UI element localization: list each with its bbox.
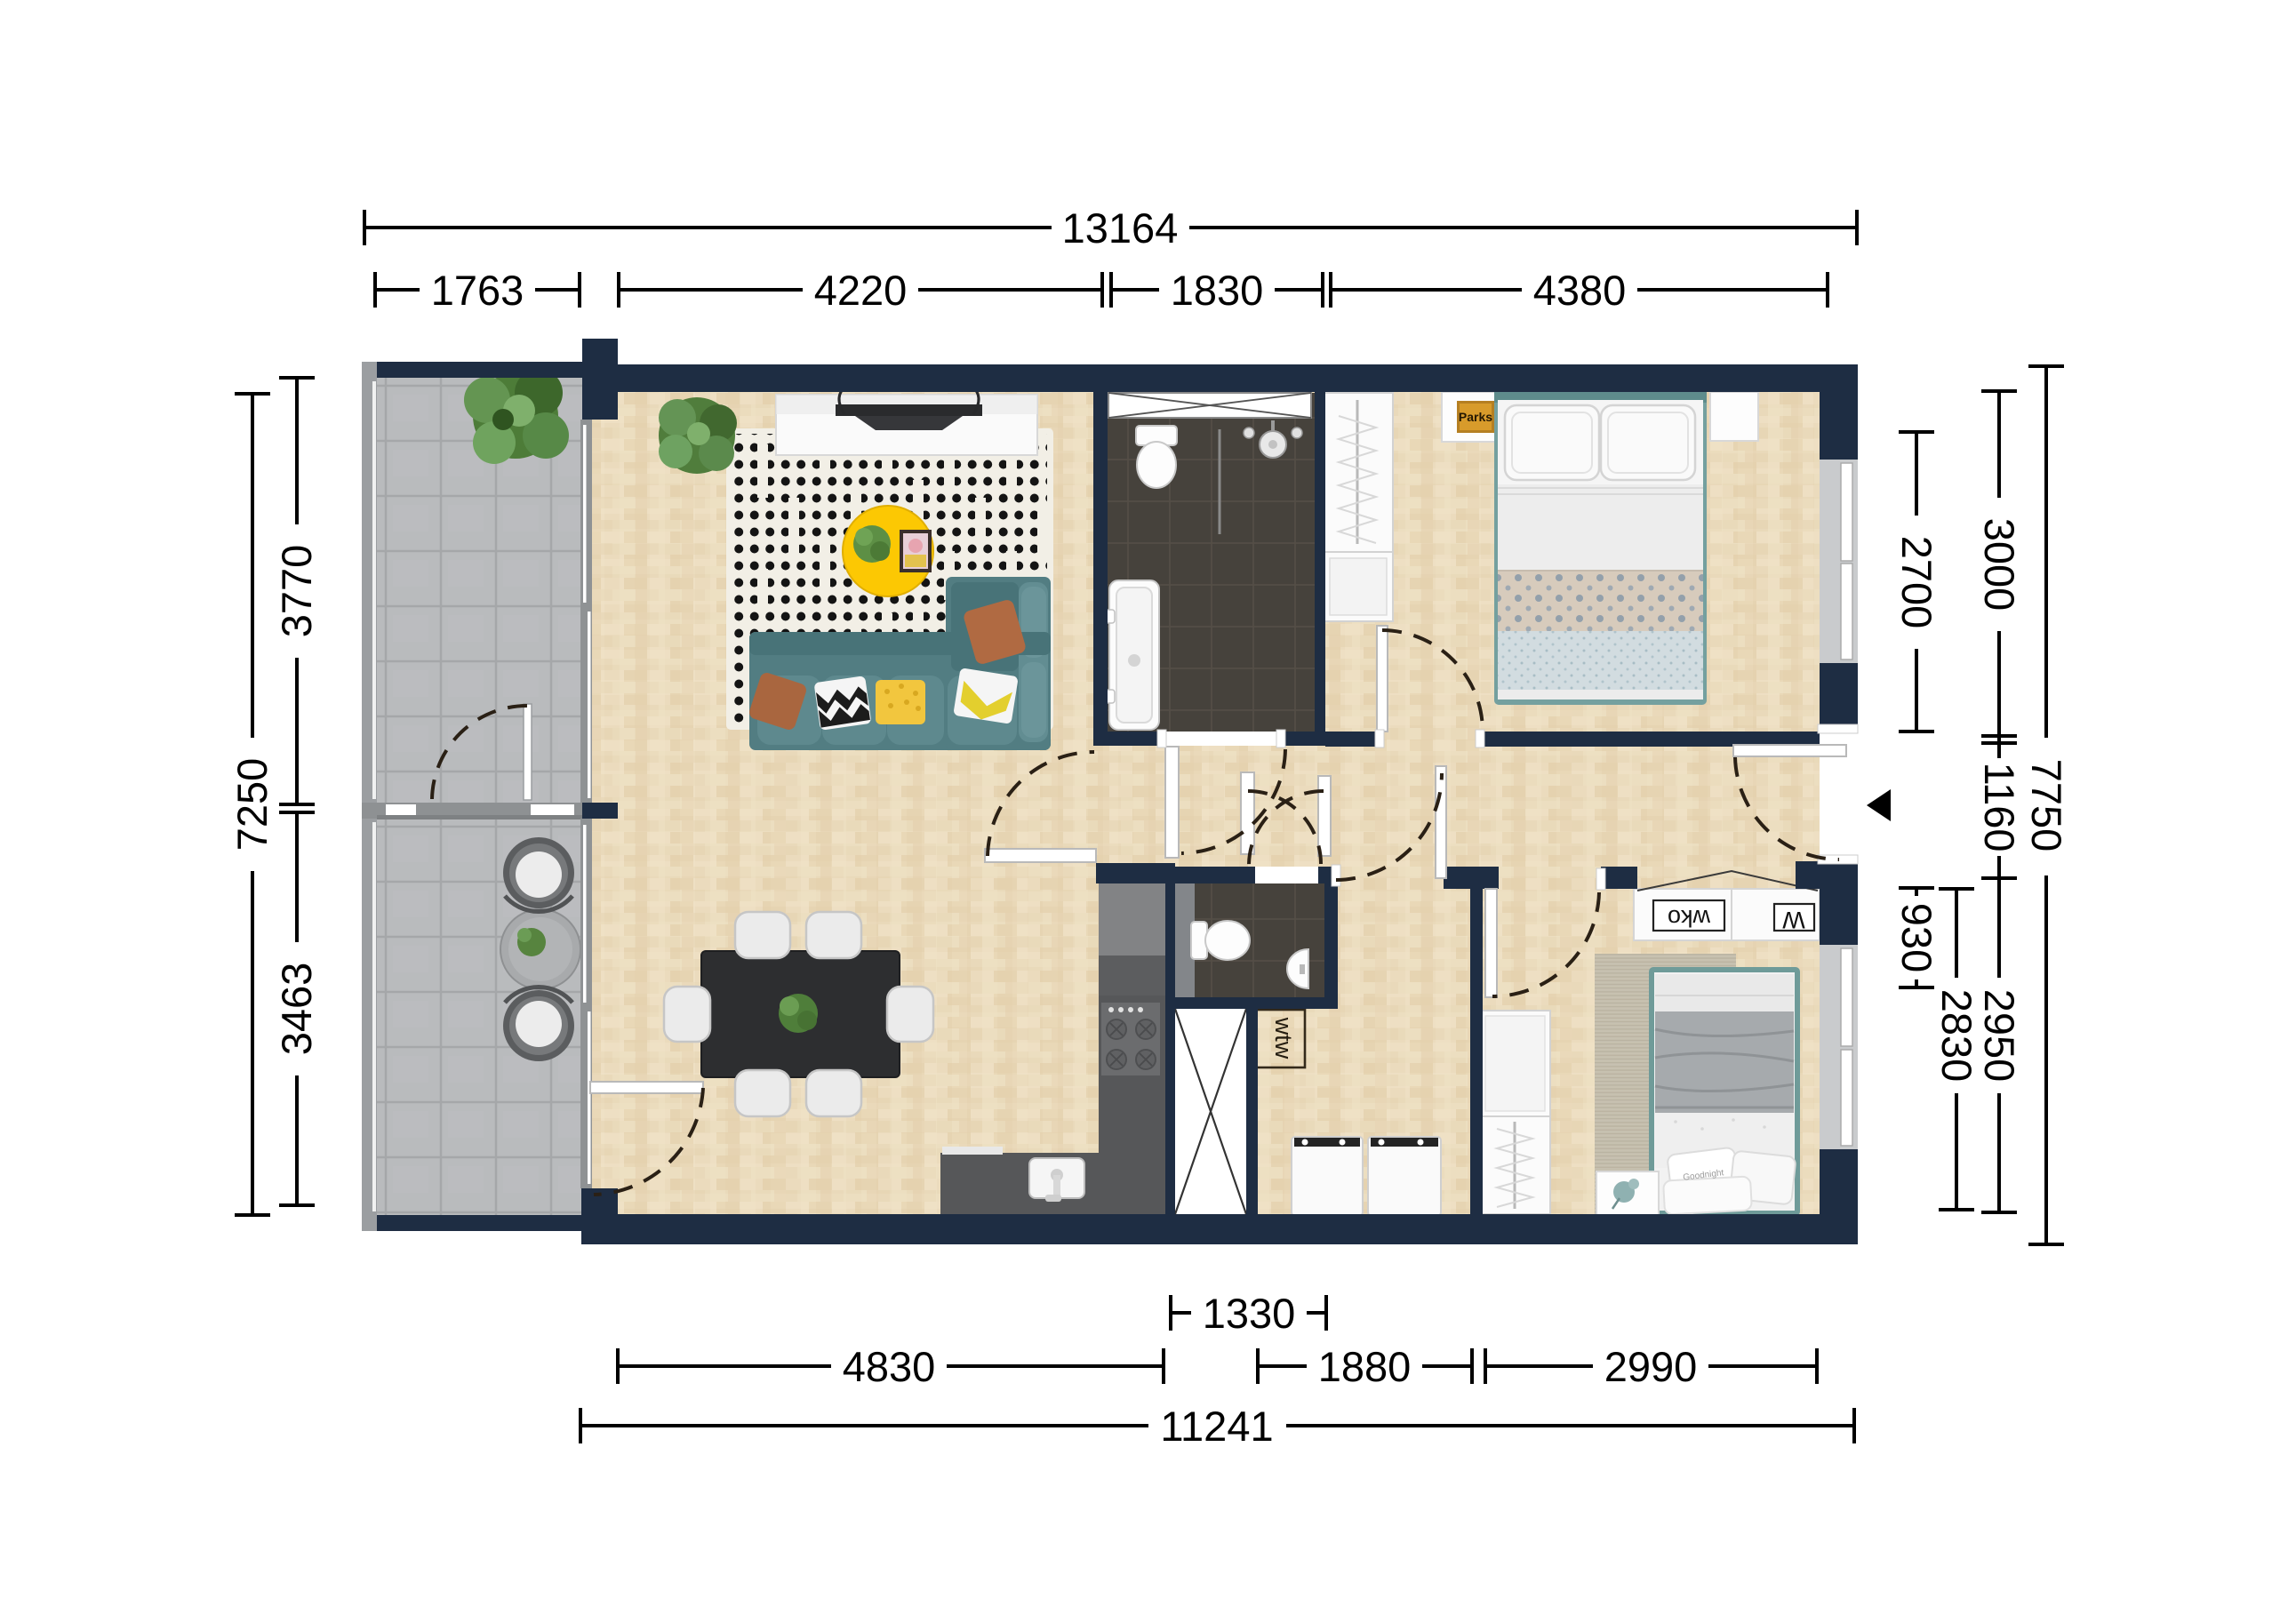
svg-text:1880: 1880 <box>1318 1343 1412 1390</box>
svg-text:W: W <box>1782 907 1805 933</box>
svg-text:2700: 2700 <box>1893 536 1940 629</box>
svg-text:930: 930 <box>1893 903 1940 972</box>
svg-text:3463: 3463 <box>273 963 320 1056</box>
svg-text:wtw: wtw <box>1270 1017 1297 1059</box>
svg-text:2990: 2990 <box>1604 1343 1698 1390</box>
svg-text:1763: 1763 <box>431 267 524 314</box>
svg-text:13164: 13164 <box>1062 204 1179 252</box>
svg-text:7250: 7250 <box>228 758 276 851</box>
svg-text:Parks: Parks <box>1459 410 1492 424</box>
svg-text:wko: wko <box>1668 905 1711 931</box>
svg-text:7750: 7750 <box>2023 759 2070 852</box>
svg-text:2950: 2950 <box>1976 989 2023 1083</box>
svg-text:11241: 11241 <box>1160 1403 1273 1450</box>
svg-text:1830: 1830 <box>1171 267 1264 314</box>
svg-text:1160: 1160 <box>1976 762 2023 851</box>
svg-text:4380: 4380 <box>1533 267 1627 314</box>
svg-text:3770: 3770 <box>273 545 320 638</box>
svg-text:4830: 4830 <box>843 1343 936 1390</box>
svg-text:1330: 1330 <box>1203 1290 1296 1337</box>
svg-text:2830: 2830 <box>1933 989 1980 1083</box>
svg-text:4220: 4220 <box>814 267 908 314</box>
svg-text:3000: 3000 <box>1976 518 2023 612</box>
